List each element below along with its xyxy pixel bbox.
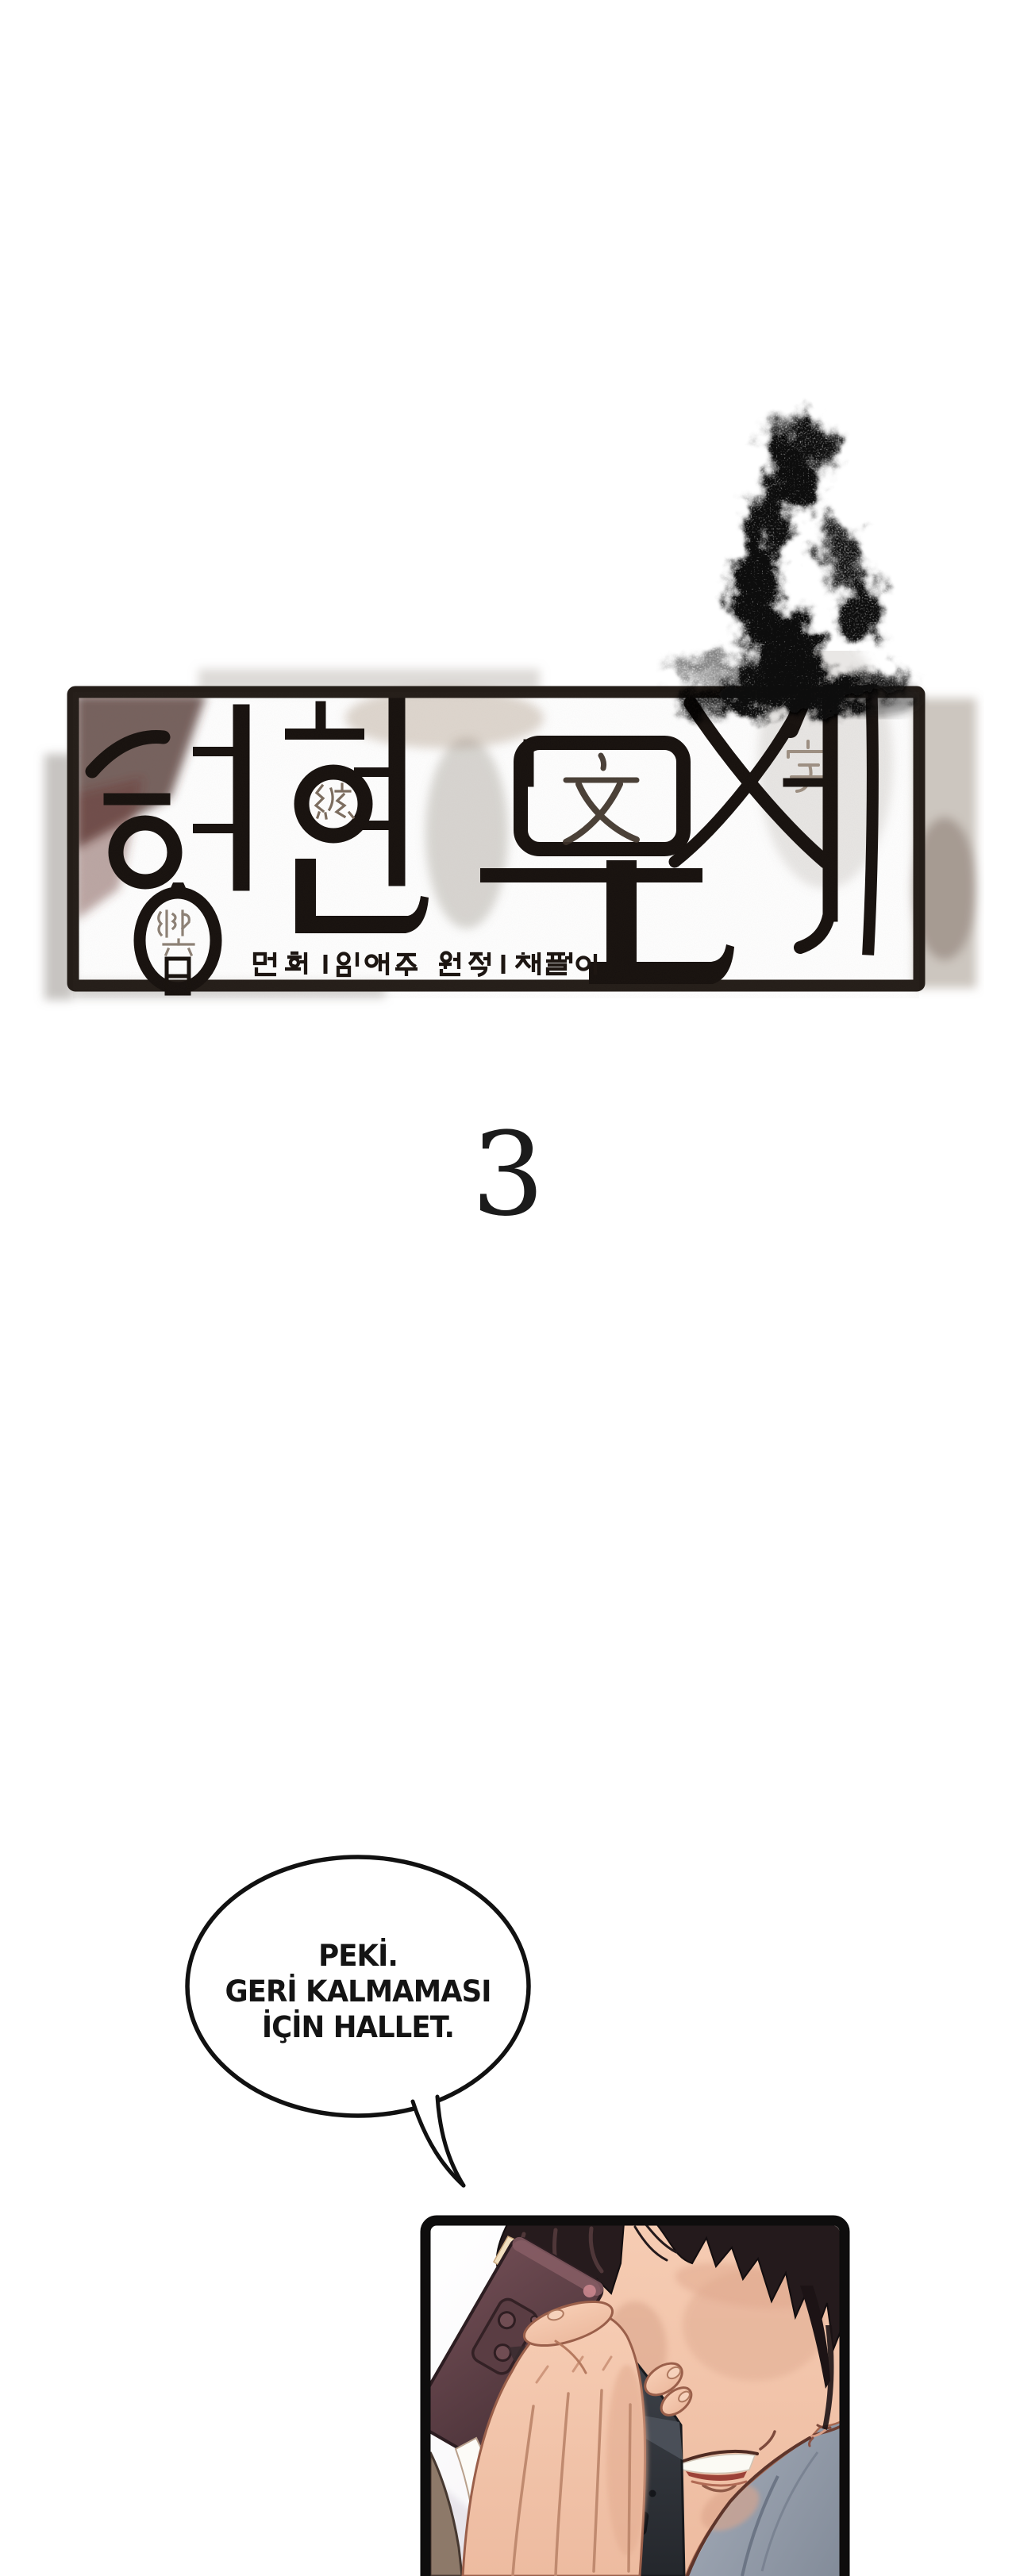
smoke-blobs bbox=[667, 415, 913, 714]
speech-line: PEKİ. bbox=[186, 1938, 530, 1974]
speech-line: GERİ KALMAMASI bbox=[186, 1974, 530, 2009]
speech-bubble-text: PEKİ. GERİ KALMAMASI İÇİN HALLET. bbox=[186, 1938, 530, 2045]
chapter-number: 3 bbox=[0, 1117, 1016, 1232]
webtoon-page: 향현문자 響絃文字 만화 ㅣ 임애주 원작 ㅣ 채팔이 bbox=[0, 0, 1016, 2576]
speech-bubble: PEKİ. GERİ KALMAMASI İÇİN HALLET. bbox=[179, 1849, 544, 2198]
hidden-text-layer: 향현문자 響絃文字 만화 ㅣ 임애주 원작 ㅣ 채팔이 bbox=[0, 0, 1, 1]
logo-grain bbox=[73, 692, 919, 998]
ink-smoke bbox=[643, 397, 937, 730]
speech-line: İÇİN HALLET. bbox=[186, 2009, 530, 2045]
comic-panel bbox=[409, 2206, 853, 2576]
